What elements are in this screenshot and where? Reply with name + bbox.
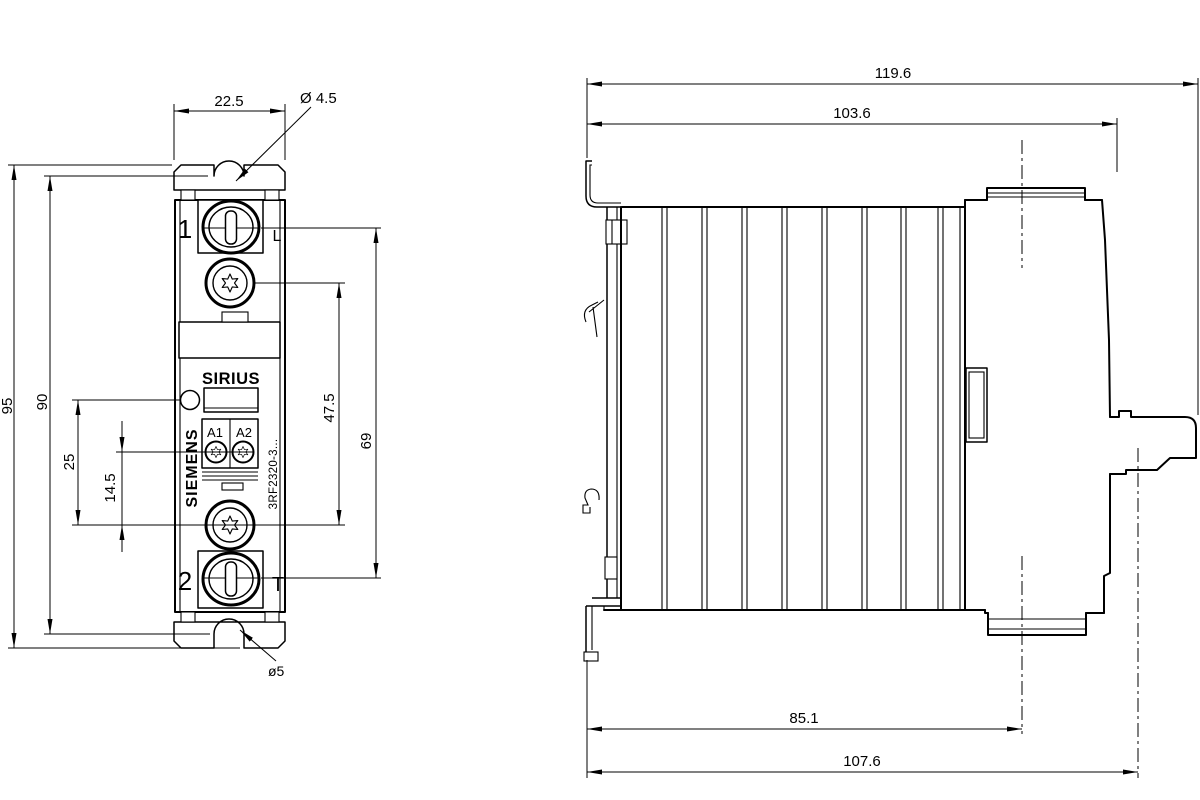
din-mounting-bracket (586, 161, 621, 207)
terminal-screw-2-slot (226, 562, 237, 596)
terminal2-label: 2 (178, 566, 192, 596)
front-view: SIRIUS A1 A2 (0, 90, 381, 679)
siemens-vertical-text: SIEMENS (184, 428, 201, 507)
dim-overall-depth-text: 119.6 (875, 65, 911, 82)
dim-hole-spacing-text: 90 (34, 394, 51, 411)
dim-torx-spacing-text: 47.5 (321, 393, 338, 422)
led-indicator (181, 391, 200, 410)
bottom-mounting-tab-side (988, 613, 1086, 635)
aux2-label: A2 (236, 425, 252, 440)
dim-overall-depth-119-6: 119.6 (587, 65, 1198, 415)
aux1-label: A1 (207, 425, 223, 440)
dim-led-to-torx-text: 25 (61, 454, 78, 471)
terminal-screw-1-slot (226, 211, 237, 244)
marking-plate-tab (222, 312, 248, 322)
side-body (965, 188, 1196, 635)
dim-overall-height-text: 95 (0, 398, 16, 415)
dim-top-hole-text: Ø 4.5 (300, 90, 337, 107)
centerlines (1022, 140, 1138, 778)
dim-rail-center-85-1: 85.1 (587, 660, 1022, 778)
din-clip-spring-lower (583, 489, 599, 513)
terminal2-line-label: T (272, 574, 284, 596)
heatsink-fins (662, 208, 960, 609)
heatsink (604, 207, 985, 610)
dim-terminal-center-107-6: 107.6 (587, 753, 1138, 772)
dim-top-hole: Ø 4.5 (236, 90, 337, 181)
dim-terminal-center-text: 107.6 (843, 753, 881, 770)
model-number-text: 3RF2320-3... (268, 439, 280, 510)
din-clip-spring-upper (584, 300, 604, 337)
terminal-block-1 (198, 200, 263, 253)
terminal-block-2 (198, 551, 263, 608)
dim-led-to-torx-25: 25 (61, 400, 180, 525)
dim-aux-to-torx-text: 14.5 (102, 473, 119, 502)
top-mounting-tab-side (987, 188, 1085, 200)
dim-body-depth-text: 103.6 (833, 105, 871, 122)
marking-plate (179, 322, 280, 358)
dimensional-drawing: SIRIUS A1 A2 (0, 0, 1200, 800)
side-view: 119.6 103.6 85.1 107.6 (583, 65, 1198, 778)
dim-bottom-hole-text: ø5 (268, 663, 285, 679)
torx-screw-upper (206, 259, 254, 307)
drawing-page: SIRIUS A1 A2 (0, 0, 1200, 800)
terminal1-line-label: L (273, 228, 282, 245)
terminal1-label: 1 (178, 214, 192, 244)
dim-rail-center-text: 85.1 (789, 710, 818, 727)
dim-width-22-5: 22.5 (174, 93, 285, 160)
dim-body-depth-103-6: 103.6 (587, 105, 1117, 172)
load-terminal-side (1110, 411, 1196, 474)
dim-bottom-hole: ø5 (240, 630, 285, 679)
dim-terminal-spacing-text: 69 (358, 433, 375, 450)
brand-text: SIRIUS (202, 370, 260, 388)
dim-width-text: 22.5 (214, 93, 243, 110)
